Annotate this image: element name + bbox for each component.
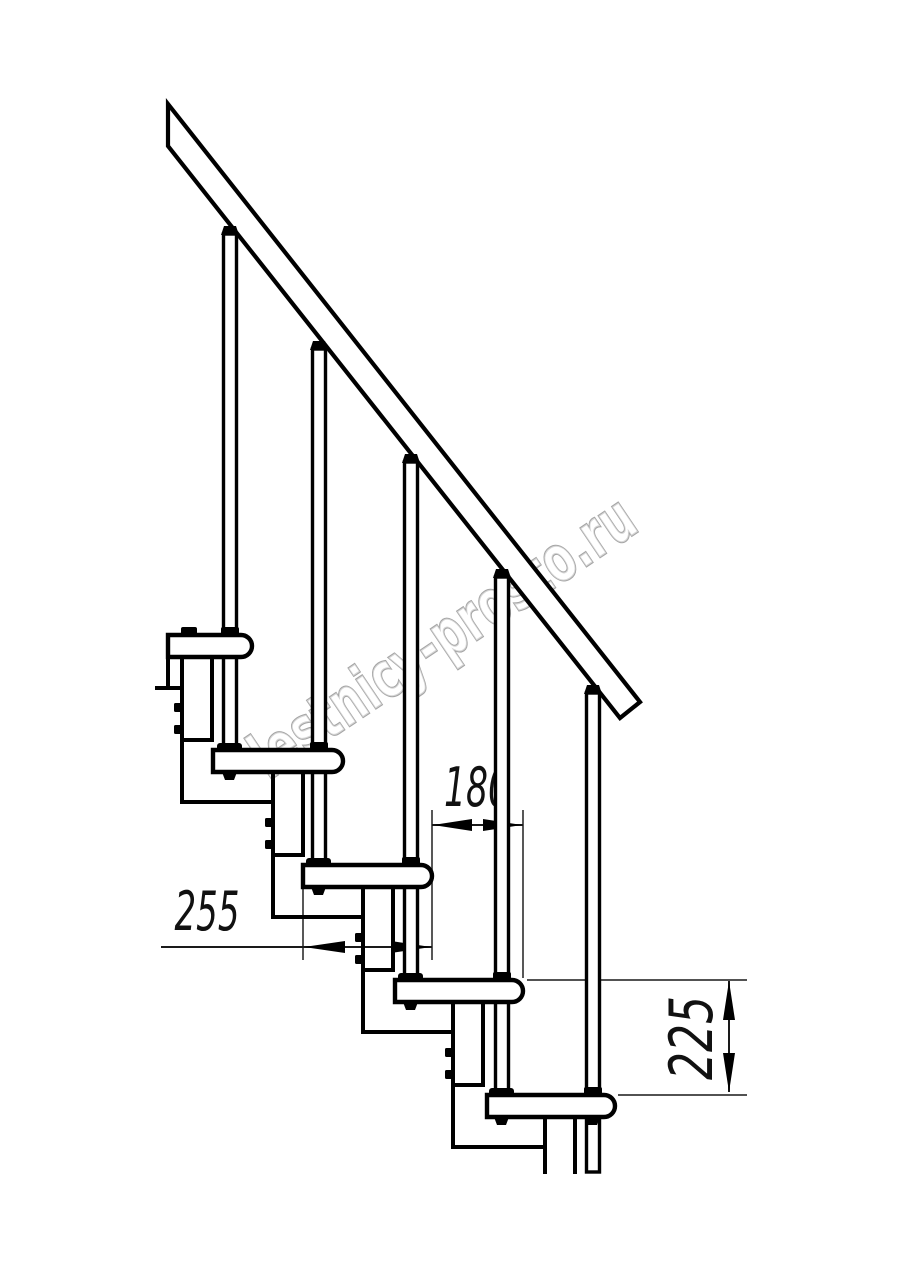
bolt-icon: [265, 840, 273, 849]
baluster-foot-icon: [398, 973, 423, 981]
staircase-technical-drawing: lestnicy-prosto.ru 255 180 225: [0, 0, 914, 1280]
tread-5: [487, 1095, 615, 1117]
tread-fastener-icon: [181, 627, 197, 635]
tread-2: [213, 750, 343, 772]
bolt-icon: [174, 703, 182, 712]
baluster-rail-cap-icon: [221, 226, 239, 235]
stringer-module-5: [545, 1117, 575, 1172]
baluster-collar-icon: [493, 972, 511, 980]
baluster-rail-cap-icon: [402, 454, 420, 463]
baluster-4: [496, 577, 509, 1096]
baluster-foot-icon: [306, 858, 331, 866]
baluster-nut-icon: [222, 772, 237, 780]
baluster-collar-icon: [221, 627, 239, 635]
bolt-icon: [355, 955, 363, 964]
arrowhead-left-icon: [304, 941, 345, 953]
tread-1: [168, 635, 252, 657]
baluster-3: [405, 462, 418, 981]
stringer-module-0: [157, 657, 182, 688]
baluster-1: [224, 234, 237, 751]
baluster-rail-cap-icon: [310, 341, 328, 350]
staircase-drawing-page: lestnicy-prosto.ru 255 180 225: [0, 0, 914, 1280]
arrowhead-left-icon: [433, 819, 472, 831]
bolt-icon: [265, 818, 273, 827]
bolt-icon: [174, 725, 182, 734]
baluster-foot-icon: [217, 743, 242, 751]
tread-3: [303, 865, 432, 887]
baluster-collar-icon: [310, 742, 328, 750]
bolt-icon: [445, 1048, 453, 1057]
baluster-foot-icon: [489, 1088, 514, 1096]
dimension-step-rise: 225: [527, 980, 747, 1095]
baluster-collar-icon: [584, 1087, 602, 1095]
bolt-icon: [445, 1070, 453, 1079]
tread-4: [395, 980, 523, 1002]
baluster-2: [313, 349, 326, 866]
baluster-nut-icon: [403, 1002, 418, 1010]
baluster-nut-icon: [494, 1117, 509, 1125]
bolt-icon: [355, 933, 363, 942]
dimension-value-225: 225: [657, 996, 727, 1080]
dimension-value-255: 255: [175, 880, 240, 943]
baluster-collar-icon: [402, 857, 420, 865]
baluster-rail-cap-icon: [493, 569, 511, 578]
baluster-rail-cap-icon: [584, 685, 602, 694]
baluster-nut-icon: [311, 887, 326, 895]
